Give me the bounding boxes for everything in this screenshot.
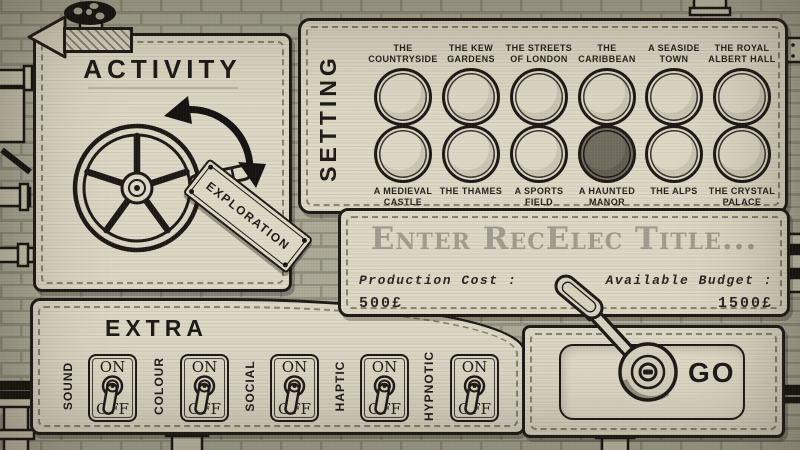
pipe-flange — [690, 8, 730, 15]
back-button[interactable] — [26, 14, 130, 60]
extra-panel: EXTRA SOUND COLOUR SOCIAL HAPTIC HYPNOTI… — [30, 298, 526, 435]
pipe-flange — [0, 398, 34, 407]
setting-option-label: A SPORTS FIELD — [504, 186, 574, 208]
setting-option: A SEASIDE TOWN — [639, 43, 709, 126]
setting-option: A SPORTS FIELD — [504, 125, 574, 208]
setting-button-the-caribbean[interactable] — [578, 68, 636, 126]
setting-option-label: THE COUNTRYSIDE — [368, 43, 438, 65]
setting-button-the-kew-gardens[interactable] — [442, 68, 500, 126]
setting-option: THE ROYAL ALBERT HALL — [707, 43, 777, 126]
setting-button-the-crystal-palace[interactable] — [713, 125, 771, 183]
setting-option-label: THE STREETS OF LONDON — [504, 43, 574, 65]
toggle-lever-icon — [272, 356, 317, 420]
pipe-flange — [20, 184, 28, 210]
setting-option-label: THE ALPS — [639, 186, 709, 197]
pipe-left-5 — [0, 382, 34, 389]
setting-option-label: A HAUNTED MANOR — [572, 186, 642, 208]
left-arrow-icon — [26, 14, 68, 60]
setting-option-label: THE CRYSTAL PALACE — [707, 186, 777, 208]
title-input[interactable]: Enter RecElec Title... — [341, 221, 787, 257]
setting-option: A MEDIEVAL CASTLE — [368, 125, 438, 208]
pipe-flange — [24, 66, 32, 90]
toggle-label-sound: SOUND — [61, 351, 75, 421]
setting-button-a-seaside-town[interactable] — [645, 68, 703, 126]
pipe-left-2 — [0, 88, 24, 142]
toggle-switch-hypnotic[interactable]: ON OFF — [450, 354, 499, 422]
pipe-bottom-2 — [602, 438, 628, 450]
setting-option: THE ALPS — [639, 125, 709, 197]
setting-option: THE COUNTRYSIDE — [368, 43, 438, 126]
setting-option: THE CARIBBEAN — [572, 43, 642, 126]
bolt — [791, 43, 795, 47]
pipe-flange — [0, 430, 34, 439]
toggle-label-social: SOCIAL — [243, 351, 257, 421]
setting-option: THE STREETS OF LONDON — [504, 43, 574, 126]
toggle-label-hypnotic: HYPNOTIC — [422, 351, 436, 421]
pipe-coupling — [18, 244, 28, 266]
setting-option: THE THAMES — [436, 125, 506, 197]
setting-option-label: THE ROYAL ALBERT HALL — [707, 43, 777, 65]
setting-panel: SETTING THE COUNTRYSIDE THE KEW GARDENS … — [298, 18, 788, 214]
left-arrow-shaft — [63, 27, 133, 53]
setting-button-the-royal-albert-hall[interactable] — [713, 68, 771, 126]
toggle-lever-icon — [362, 356, 407, 420]
setting-option-label: THE KEW GARDENS — [436, 43, 506, 65]
setting-button-the-countryside[interactable] — [374, 68, 432, 126]
setting-button-a-haunted-manor[interactable] — [578, 125, 636, 183]
toggle-switch-sound[interactable]: ON OFF — [88, 354, 137, 422]
toggle-switch-social[interactable]: ON OFF — [270, 354, 319, 422]
extra-title: EXTRA — [105, 315, 208, 342]
toggle-label-colour: COLOUR — [152, 351, 166, 421]
pipe-bottom-1 — [172, 436, 202, 450]
pipe-bracket-right — [786, 38, 800, 62]
setting-option-label: A MEDIEVAL CASTLE — [368, 186, 438, 208]
setting-button-the-streets-of-london[interactable] — [510, 68, 568, 126]
setting-button-a-sports-field[interactable] — [510, 125, 568, 183]
toggle-switch-colour[interactable]: ON OFF — [180, 354, 229, 422]
toggle-lever-icon — [90, 356, 135, 420]
bolt — [791, 54, 795, 58]
setting-option-label: A SEASIDE TOWN — [639, 43, 709, 65]
setting-button-the-thames[interactable] — [442, 125, 500, 183]
setting-option: THE CRYSTAL PALACE — [707, 125, 777, 208]
setting-option-label: THE THAMES — [436, 186, 506, 197]
production-cost-label: Production Cost : — [359, 273, 517, 288]
setting-title: SETTING — [315, 38, 341, 198]
crank-wheel-icon[interactable] — [42, 86, 287, 276]
setting-button-the-alps[interactable] — [645, 125, 703, 183]
setting-option: THE KEW GARDENS — [436, 43, 506, 126]
toggle-lever-icon — [182, 356, 227, 420]
production-cost-value: 500£ — [359, 295, 403, 312]
toggle-switch-haptic[interactable]: ON OFF — [360, 354, 409, 422]
setting-button-a-medieval-castle[interactable] — [374, 125, 432, 183]
setting-option-label: THE CARIBBEAN — [572, 43, 642, 65]
setting-option: A HAUNTED MANOR — [572, 125, 642, 208]
go-lever-icon[interactable] — [530, 255, 730, 415]
toggle-label-haptic: HAPTIC — [333, 351, 347, 421]
activity-panel: ACTIVITY — [33, 33, 292, 292]
toggle-lever-icon — [452, 356, 497, 420]
